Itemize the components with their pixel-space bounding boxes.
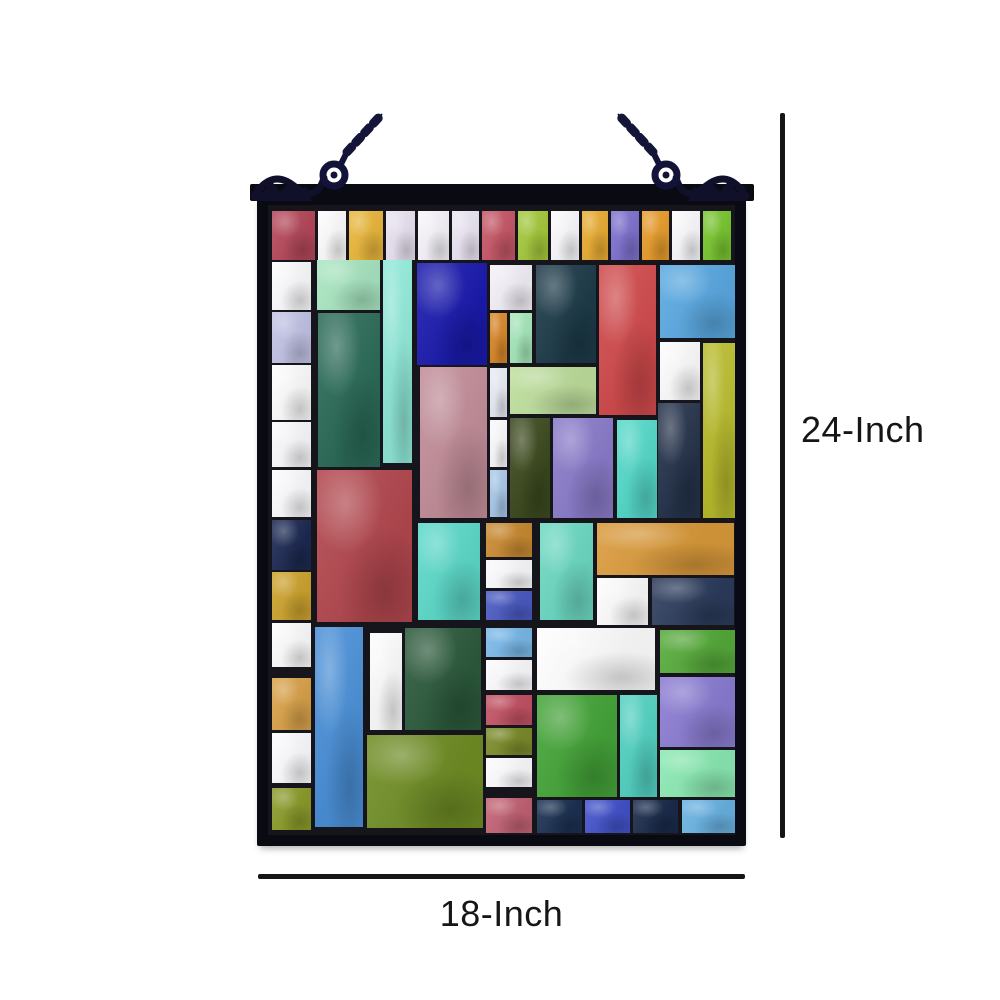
hanging-chain-icon [618, 114, 653, 152]
height-dimension-label: 24-Inch [801, 409, 925, 451]
hanging-chain-icon [347, 114, 382, 152]
width-dimension-line [258, 874, 745, 879]
width-dimension-label: 18-Inch [258, 893, 745, 935]
hanging-hardware [0, 0, 1000, 1000]
scroll-bracket-icon [252, 154, 346, 201]
product-dimension-figure: 24-Inch 18-Inch [0, 0, 1000, 1000]
height-dimension-line [780, 113, 785, 838]
scroll-bracket-icon [654, 154, 748, 201]
